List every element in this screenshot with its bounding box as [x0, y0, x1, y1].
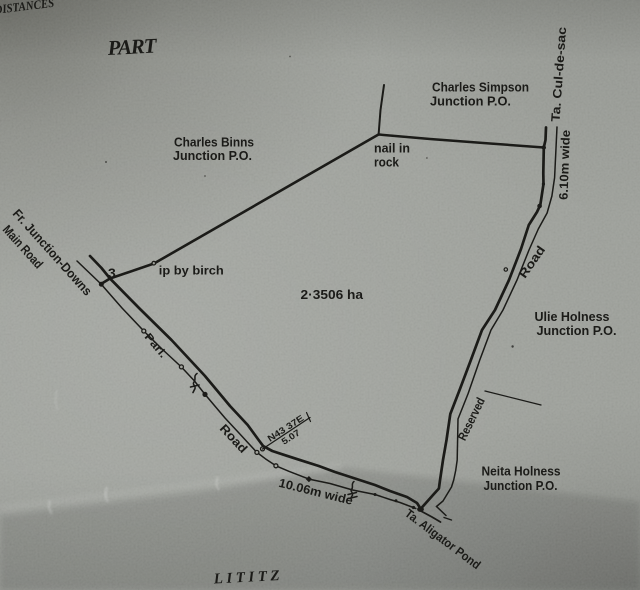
svg-text:Ulie Holness: Ulie Holness — [535, 309, 610, 324]
svg-text:rock: rock — [374, 155, 400, 170]
svg-text:Junction P.O.: Junction P.O. — [173, 148, 252, 163]
svg-text:ip by birch: ip by birch — [159, 264, 224, 278]
svg-text:6.10m wide: 6.10m wide — [557, 129, 573, 200]
svg-text:3: 3 — [108, 265, 116, 281]
svg-text:Junction P.O.: Junction P.O. — [430, 94, 511, 109]
svg-text:Neita Holness: Neita Holness — [482, 464, 561, 479]
svg-text:Charles Simpson: Charles Simpson — [432, 80, 529, 95]
svg-text:nail in: nail in — [374, 141, 410, 156]
svg-text:2·3506 ha: 2·3506 ha — [301, 287, 364, 302]
svg-text:Junction P.O.: Junction P.O. — [484, 478, 558, 493]
svg-text:Junction P.O.: Junction P.O. — [537, 323, 617, 338]
svg-text:PART: PART — [106, 33, 158, 60]
